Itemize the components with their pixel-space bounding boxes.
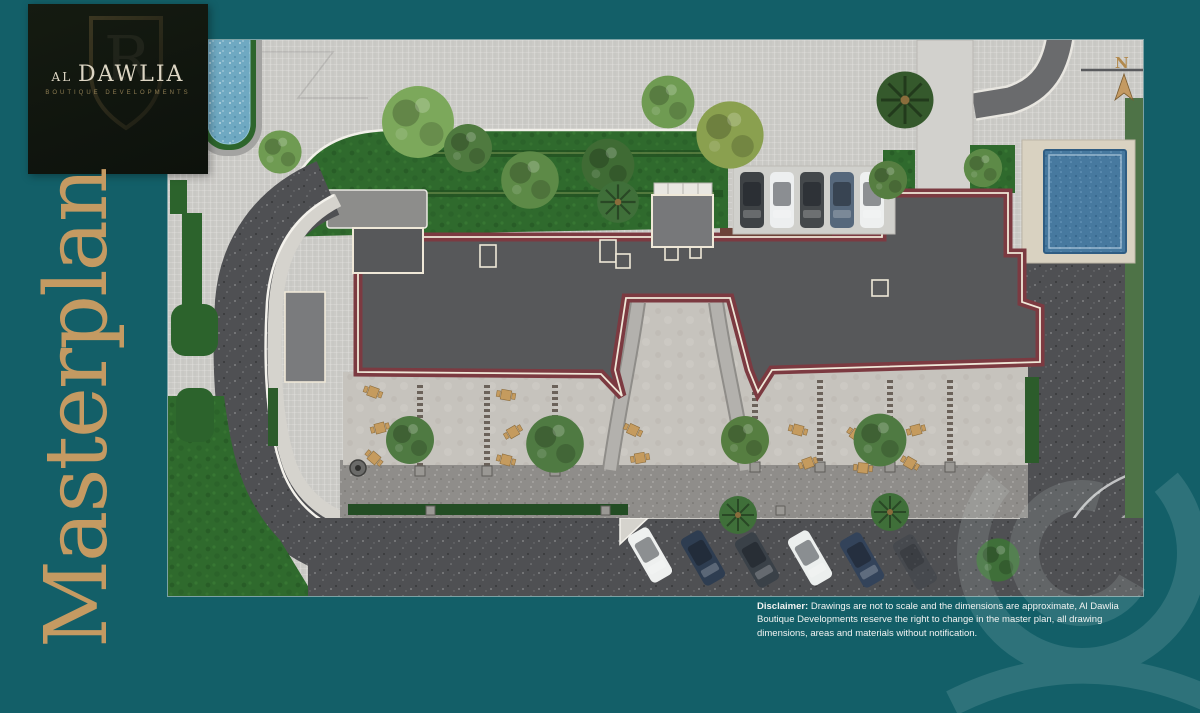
compass-n-label: N — [1115, 54, 1129, 72]
fire-pit — [350, 460, 366, 476]
logo-title: DAWLIA — [78, 62, 184, 87]
logo-prefix: AL — [52, 70, 78, 84]
masterplan-page: { "page": { "background_color": "#135f68… — [0, 0, 1200, 675]
logo-subtitle: BOUTIQUE DEVELOPMENTS — [45, 90, 190, 96]
disclaimer-label: Disclaimer: — [757, 601, 808, 612]
parked-car — [740, 172, 884, 228]
masterplan-map: N — [168, 40, 1143, 596]
brand-logo-box: R AL DAWLIA BOUTIQUE DEVELOPMENTS — [28, 4, 208, 174]
disclaimer-text: Disclaimer: Drawings are not to scale an… — [757, 600, 1147, 640]
annex-building — [285, 292, 325, 382]
disclaimer-body: Drawings are not to scale and the dimens… — [757, 601, 1119, 639]
siteplan-canvas: N — [168, 40, 1143, 596]
logo-wordmark: AL DAWLIA — [52, 62, 185, 87]
rect-pool — [1022, 140, 1135, 263]
south-hedge — [348, 504, 628, 515]
court — [327, 190, 427, 228]
building-west-wing — [353, 228, 423, 273]
roof-pavilion — [652, 183, 713, 247]
page-title: Masterplan — [34, 169, 120, 648]
